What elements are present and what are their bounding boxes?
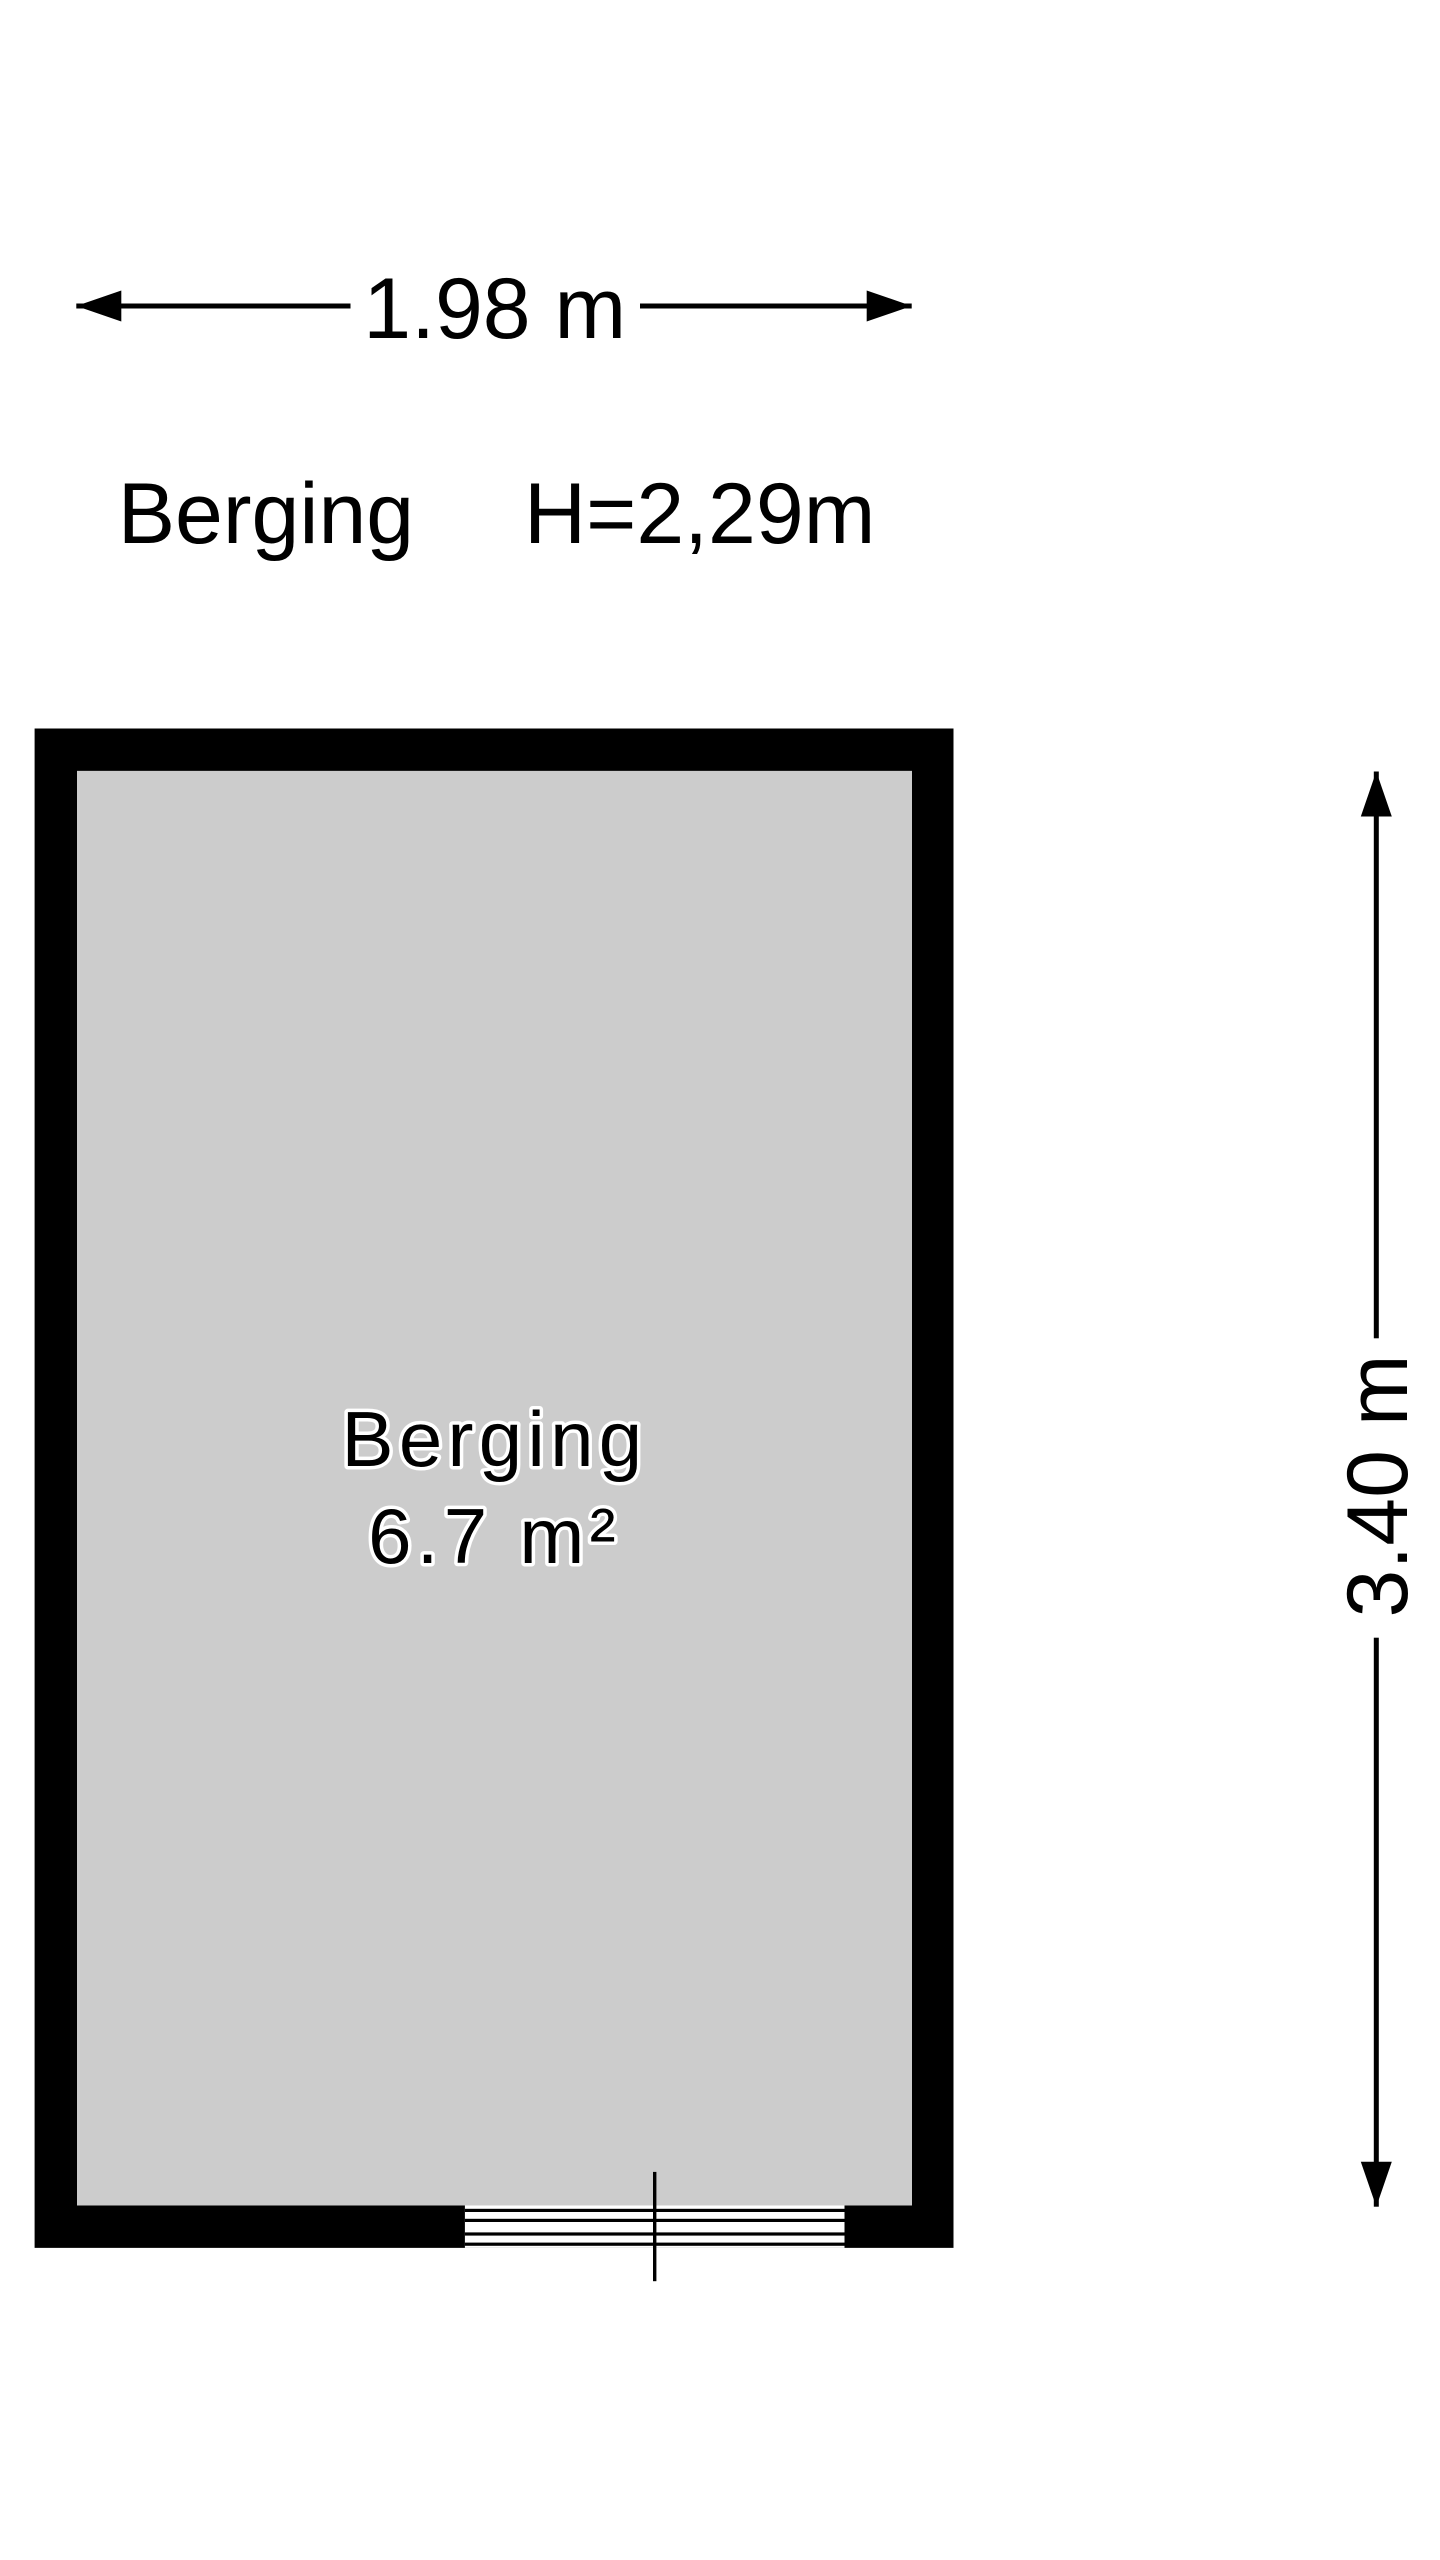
svg-text:1.98 m: 1.98 m — [363, 261, 626, 357]
svg-text:3.40 m: 3.40 m — [1330, 1355, 1426, 1618]
svg-text:Berging: Berging — [118, 466, 414, 562]
svg-text:6.7 m²: 6.7 m² — [368, 1492, 621, 1580]
svg-text:Berging: Berging — [342, 1395, 648, 1483]
svg-text:H=2,29m: H=2,29m — [524, 466, 875, 562]
